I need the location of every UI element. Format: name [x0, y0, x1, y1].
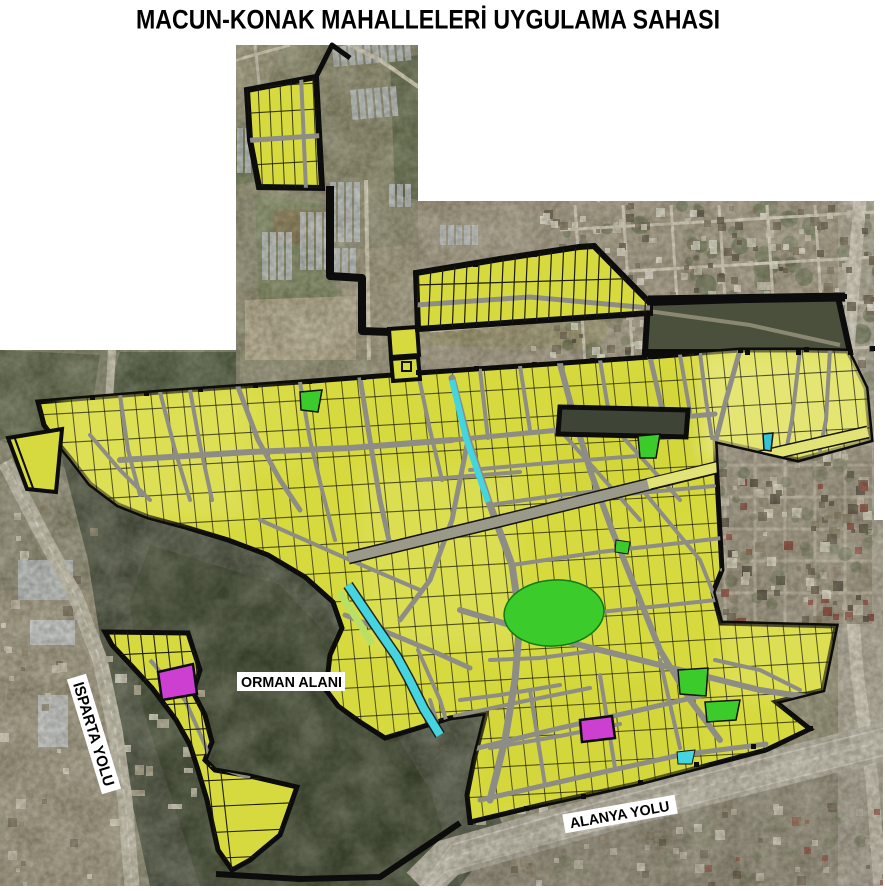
svg-text:MACUN-KONAK MAHALLELERİ UYGULA: MACUN-KONAK MAHALLELERİ UYGULAMA SAHASI [136, 5, 720, 35]
svg-text:ORMAN ALANI: ORMAN ALANI [241, 674, 342, 691]
